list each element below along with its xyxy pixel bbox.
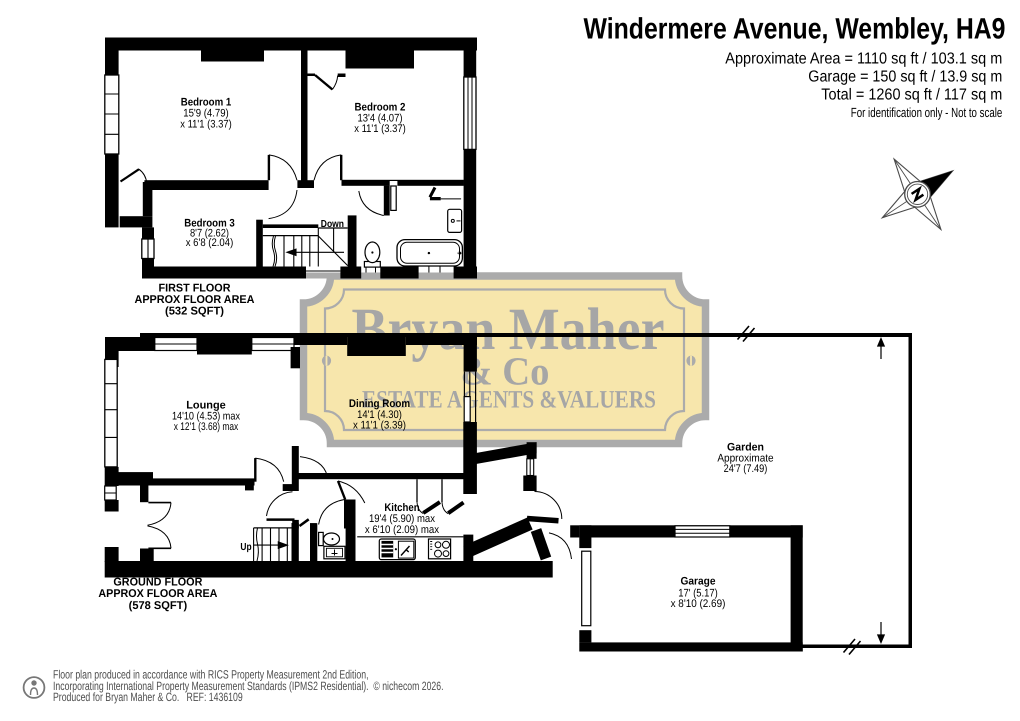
svg-text:x 6'8 (2.04): x 6'8 (2.04) <box>186 237 234 249</box>
svg-text:x 8'10 (2.69): x 8'10 (2.69) <box>671 598 726 610</box>
svg-text:x 11'1 (3.39): x 11'1 (3.39) <box>353 420 406 432</box>
svg-text:FIRST FLOOR: FIRST FLOOR <box>159 282 231 294</box>
svg-text:Up: Up <box>240 542 251 553</box>
svg-text:APPROX FLOOR AREA: APPROX FLOOR AREA <box>135 294 255 306</box>
svg-text:(578 SQFT): (578 SQFT) <box>129 600 188 612</box>
svg-text:24'7 (7.49): 24'7 (7.49) <box>724 463 768 475</box>
svg-text:Windermere Avenue, Wembley, HA: Windermere Avenue, Wembley, HA9 <box>584 13 1006 46</box>
svg-text:x 12'1 (3.68) max: x 12'1 (3.68) max <box>174 421 239 433</box>
svg-text:For identification only - Not: For identification only - Not to scale <box>851 105 1003 120</box>
svg-text:(532 SQFT): (532 SQFT) <box>165 306 224 318</box>
svg-text:Down: Down <box>321 219 344 230</box>
svg-text:Total = 1260 sq ft / 117 sq m: Total = 1260 sq ft / 117 sq m <box>821 86 1002 103</box>
svg-text:APPROX FLOOR AREA: APPROX FLOOR AREA <box>98 588 217 600</box>
svg-text:Approximate Area = 1110 sq ft: Approximate Area = 1110 sq ft / 103.1 sq… <box>725 51 1002 68</box>
svg-text:x 11'1 (3.37): x 11'1 (3.37) <box>180 118 232 130</box>
svg-text:Produced for Bryan Maher & Co.: Produced for Bryan Maher & Co. REF: 1436… <box>53 690 243 704</box>
svg-text:Lounge: Lounge <box>186 399 226 411</box>
svg-text:x 11'1 (3.37): x 11'1 (3.37) <box>354 123 406 135</box>
svg-text:Garage = 150 sq ft / 13.9 sq m: Garage = 150 sq ft / 13.9 sq m <box>808 68 1002 85</box>
svg-text:GROUND FLOOR: GROUND FLOOR <box>113 576 202 588</box>
svg-text:Garage: Garage <box>681 576 716 588</box>
svg-text:x 6'10 (2.09) max: x 6'10 (2.09) max <box>365 524 440 536</box>
